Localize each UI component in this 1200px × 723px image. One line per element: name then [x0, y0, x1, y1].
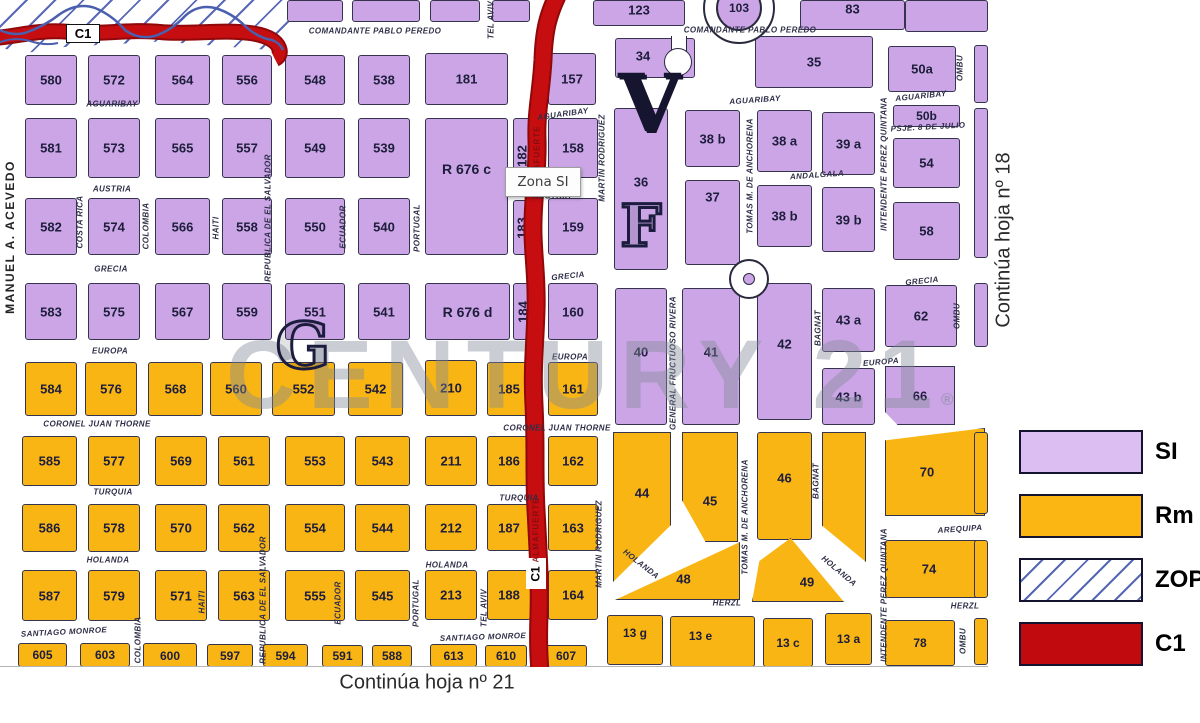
block-number: 575 — [103, 304, 125, 319]
street-label-ombu: OMBU — [953, 303, 962, 329]
block-159: 159 — [548, 198, 598, 255]
block-556: 556 — [222, 55, 272, 105]
block-163: 163 — [548, 504, 598, 551]
century21-watermark: CENTURY 21 — [226, 326, 944, 423]
block-number: 13 c — [776, 636, 799, 650]
logo-letter-f: F — [620, 197, 661, 255]
block-number: 600 — [160, 649, 180, 663]
block-number: 572 — [103, 73, 125, 88]
street-label-santiago-monroe: SANTIAGO MONROE — [21, 625, 108, 639]
block-561: 561 — [218, 436, 270, 486]
block-587: 587 — [22, 570, 77, 621]
block-568: 568 — [148, 362, 203, 416]
map-canvas: 103 C1 C1 V G F CENTURY 21 ® Zona SI 123… — [0, 0, 988, 667]
block-584: 584 — [25, 362, 77, 416]
block-553: 553 — [285, 436, 345, 486]
block-574: 574 — [88, 198, 140, 255]
street-label-republica-de-el-salvador: REPUBLICA DE EL SALVADOR — [264, 154, 273, 282]
block-number: 38 a — [772, 134, 797, 149]
block-605: 605 — [18, 643, 67, 667]
block-fragment — [974, 432, 988, 514]
block-number: 50a — [911, 62, 933, 77]
zona-si-tooltip: Zona SI — [505, 167, 581, 197]
block-number: 576 — [100, 382, 122, 397]
block-fragment — [974, 45, 988, 103]
street-label-santiago-monroe: SANTIAGO MONROE — [440, 631, 527, 643]
block-number: 586 — [39, 521, 61, 536]
block-number: 39 b — [835, 212, 861, 227]
block-number: 585 — [39, 454, 61, 469]
block-number: 549 — [304, 141, 326, 156]
block-number: 36 — [634, 175, 648, 190]
legend-swatch-zop — [1019, 558, 1143, 602]
block-fragment — [974, 108, 988, 258]
block-212: 212 — [425, 504, 477, 551]
block-213: 213 — [425, 570, 477, 620]
block-number: 540 — [373, 219, 395, 234]
legend-swatch-rm — [1019, 494, 1143, 538]
block-number: 213 — [440, 588, 462, 603]
block-538: 538 — [358, 55, 410, 105]
logo-letter-v: V — [618, 63, 680, 143]
block-564: 564 — [155, 55, 210, 105]
street-label-tel-aviv: TEL AVIV — [480, 589, 489, 627]
street-label-intendente-perez-quintana: INTENDENTE PEREZ QUINTANA — [880, 97, 889, 231]
continuation-label-bottom: Continúa hoja nº 21 — [339, 672, 514, 695]
block-576: 576 — [85, 362, 137, 416]
block-R676c: R 676 c — [425, 118, 508, 255]
block-number: 187 — [498, 520, 520, 535]
block-number: 556 — [236, 73, 258, 88]
block-13e: 13 e — [670, 616, 755, 667]
street-label-portugal: PORTUGAL — [412, 579, 421, 627]
block-591: 591 — [322, 645, 363, 667]
block-number: 58 — [919, 224, 933, 239]
block-number: 580 — [40, 73, 62, 88]
block-fragment — [974, 283, 988, 347]
street-label-comandante-pablo-peredo: COMANDANTE PABLO PEREDO — [684, 26, 817, 35]
block-157: 157 — [548, 53, 596, 105]
block-number: 559 — [236, 304, 258, 319]
street-label-martin-rodriguez: MARTIN RODRIGUEZ — [595, 500, 604, 588]
block-fragment — [822, 432, 866, 562]
block-575: 575 — [88, 283, 140, 340]
legend-swatch-c1 — [1019, 622, 1143, 666]
street-label-ombu: OMBU — [959, 628, 968, 654]
street-label-portugal: PORTUGAL — [413, 204, 422, 252]
block-567: 567 — [155, 283, 210, 340]
block-number: 569 — [170, 454, 192, 469]
block-number: 545 — [372, 588, 394, 603]
block-610: 610 — [485, 645, 527, 667]
zoning-map-page: 103 C1 C1 V G F CENTURY 21 ® Zona SI 123… — [0, 0, 1200, 723]
block-39a: 39 a — [822, 112, 875, 175]
block-181: 181 — [425, 53, 508, 105]
street-label-holanda: HOLANDA — [426, 561, 469, 570]
street-label-comandante-pablo-peredo: COMANDANTE PABLO PEREDO — [309, 27, 442, 36]
block-number: 13 e — [689, 629, 712, 643]
block-number: 159 — [562, 219, 584, 234]
block-number: 163 — [562, 520, 584, 535]
block-number: 54 — [919, 156, 933, 171]
block-565: 565 — [155, 118, 210, 178]
block-number: 565 — [172, 141, 194, 156]
block-number: 610 — [496, 649, 516, 663]
block-number: 70 — [920, 465, 934, 480]
registered-mark: ® — [941, 390, 954, 410]
block-582: 582 — [25, 198, 77, 255]
block-number: 566 — [172, 219, 194, 234]
logo-letter-g: G — [276, 315, 331, 379]
street-label-aguaribay: AGUARIBAY — [86, 100, 137, 109]
block-550: 550 — [285, 198, 345, 255]
street-label-herzl: HERZL — [713, 599, 742, 608]
block-number: 183 — [515, 217, 530, 239]
block-number: 49 — [800, 575, 814, 590]
block-539: 539 — [358, 118, 410, 178]
legend-label-rm: Rm — [1155, 502, 1194, 530]
block-number: 35 — [807, 55, 821, 70]
street-label-haiti: HAITI — [198, 591, 207, 614]
block-fragment — [352, 0, 420, 22]
block-number: 570 — [170, 521, 192, 536]
street-label-grecia: GRECIA — [551, 270, 585, 282]
street-label-republica-de-el-salvador: REPUBLICA DE EL SALVADOR — [259, 536, 268, 664]
block-number: 162 — [562, 454, 584, 469]
block-number: 613 — [443, 649, 463, 663]
block-581: 581 — [25, 118, 77, 178]
block-number: R 676 d — [443, 304, 493, 320]
block-613: 613 — [430, 644, 477, 667]
block-123: 123 — [593, 0, 685, 26]
block-number: 157 — [561, 72, 583, 87]
block-600: 600 — [143, 643, 197, 667]
c1-road-badge-road: C1 — [526, 558, 546, 589]
block-number: 548 — [304, 73, 326, 88]
block-number: 571 — [170, 588, 192, 603]
block-54: 54 — [893, 138, 960, 188]
block-13a: 13 a — [825, 613, 872, 665]
block-fragment — [905, 0, 988, 32]
block-597: 597 — [207, 644, 253, 667]
block-number: 564 — [172, 73, 194, 88]
block-162: 162 — [548, 436, 598, 486]
block-number: 181 — [456, 72, 478, 87]
block-164: 164 — [548, 570, 598, 620]
street-label-austria: AUSTRIA — [93, 185, 131, 194]
block-585: 585 — [22, 436, 77, 486]
street-label-holanda: HOLANDA — [87, 556, 130, 565]
street-label-grecia: GRECIA — [94, 265, 128, 274]
block-74: 74 — [885, 540, 985, 598]
block-583: 583 — [25, 283, 77, 340]
block-number: 44 — [635, 486, 649, 501]
block-594: 594 — [263, 644, 308, 667]
block-number: 561 — [233, 454, 255, 469]
legend-label-c1: C1 — [1155, 630, 1186, 658]
street-label-tel-aviv: TEL AVIV — [487, 1, 496, 39]
block-number: 541 — [373, 304, 395, 319]
block-number: 78 — [913, 636, 926, 650]
zop-hatch-area — [0, 0, 292, 56]
block-number: 573 — [103, 141, 125, 156]
block-number: 45 — [703, 494, 717, 509]
block-number: 13 a — [837, 632, 860, 646]
block-number: 48 — [676, 572, 690, 587]
street-label-tomas-m-de-anchorena: TOMAS M. DE ANCHORENA — [746, 118, 755, 234]
street-label-martin-rodriguez: MARTIN RODRIGUEZ — [598, 114, 607, 202]
block-37: 37 — [685, 180, 740, 265]
block-573: 573 — [88, 118, 140, 178]
block-566: 566 — [155, 198, 210, 255]
block-number: 603 — [95, 648, 115, 662]
block-fragment — [430, 0, 480, 22]
block-number: 568 — [165, 382, 187, 397]
block-183: 183 — [513, 200, 531, 255]
block-548: 548 — [285, 55, 345, 105]
street-label-colombia: COLOMBIA — [142, 203, 151, 250]
legend-row-c1: C1 — [1019, 622, 1186, 666]
roundabout-mid-inner — [743, 273, 755, 285]
street-label-bagnat: BAGNAT — [812, 463, 821, 499]
street-label-colombia: COLOMBIA — [134, 617, 143, 664]
street-label-costa-rica: COSTA RICA — [76, 196, 85, 249]
block-number: 577 — [103, 454, 125, 469]
block-number: R 676 c — [442, 161, 491, 177]
roundabout-number: 103 — [729, 1, 749, 15]
block-number: 574 — [103, 219, 125, 234]
legend-swatch-si — [1019, 430, 1143, 474]
road-inscription: ALMAFUERTE — [532, 497, 541, 562]
block-number: 582 — [40, 219, 62, 234]
block-number: 594 — [275, 649, 295, 663]
continuation-label-right: Continúa hoja nº 18 — [993, 152, 1016, 327]
block-number: 562 — [233, 521, 255, 536]
block-number: 83 — [845, 2, 859, 17]
block-603: 603 — [80, 643, 130, 667]
block-58: 58 — [893, 202, 960, 260]
block-number: 160 — [562, 304, 584, 319]
block-187: 187 — [487, 504, 531, 551]
tooltip-text: Zona SI — [517, 174, 568, 190]
block-543: 543 — [355, 436, 410, 486]
block-fragment — [974, 540, 988, 598]
block-number: 46 — [777, 471, 791, 486]
block-188: 188 — [487, 570, 531, 620]
block-549: 549 — [285, 118, 345, 178]
block-13c: 13 c — [763, 618, 813, 667]
legend-row-zop: ZOP — [1019, 558, 1200, 602]
legend-row-si: SI — [1019, 430, 1178, 474]
block-number: 38 b — [699, 131, 725, 146]
block-38a: 38 a — [757, 110, 812, 172]
block-569: 569 — [155, 436, 207, 486]
block-number: 186 — [498, 454, 520, 469]
street-label-intendente-perez-quintana: INTENDENTE PEREZ QUINTANA — [880, 528, 889, 662]
block-number: 554 — [304, 521, 326, 536]
block-572: 572 — [88, 55, 140, 105]
block-number: 583 — [40, 304, 62, 319]
block-number: 123 — [628, 3, 650, 18]
block-number: 550 — [304, 219, 326, 234]
block-number: 538 — [373, 73, 395, 88]
block-70: 70 — [885, 428, 985, 516]
street-label-europa: EUROPA — [92, 347, 128, 356]
block-number: 579 — [103, 588, 125, 603]
block-number: 38 b — [771, 209, 797, 224]
block-number: 581 — [40, 141, 62, 156]
block-50a: 50a — [888, 46, 956, 92]
block-544: 544 — [355, 504, 410, 552]
block-45: 45 — [682, 432, 738, 542]
block-number: 558 — [236, 219, 258, 234]
block-540: 540 — [358, 198, 410, 255]
block-number: 597 — [220, 649, 240, 663]
block-39b: 39 b — [822, 187, 875, 252]
street-label-tomas-m-de-anchorena: TOMAS M. DE ANCHORENA — [741, 459, 750, 575]
block-number: 164 — [562, 588, 584, 603]
block-586: 586 — [22, 504, 77, 552]
street-label-ombu: OMBU — [956, 55, 965, 81]
block-number: 539 — [373, 141, 395, 156]
block-number: 37 — [705, 189, 719, 204]
block-fragment — [287, 0, 343, 22]
block-number: 543 — [372, 454, 394, 469]
block-number: 557 — [236, 141, 258, 156]
block-607: 607 — [545, 645, 587, 667]
block-580: 580 — [25, 55, 77, 105]
block-number: 553 — [304, 454, 326, 469]
block-579: 579 — [88, 570, 140, 621]
street-label-manuel-a-acevedo: MANUEL A. ACEVEDO — [3, 160, 17, 314]
legend-row-rm: Rm — [1019, 494, 1194, 538]
block-577: 577 — [88, 436, 140, 486]
block-number: 584 — [40, 382, 62, 397]
block-number: 591 — [332, 649, 352, 663]
block-number: 211 — [441, 454, 462, 469]
street-label-haiti: HAITI — [212, 217, 221, 240]
block-number: 13 g — [623, 626, 647, 640]
block-545: 545 — [355, 570, 410, 621]
block-35: 35 — [755, 36, 873, 88]
street-label-coronel-juan-thorne: CORONEL JUAN THORNE — [43, 420, 150, 429]
block-number: 50b — [916, 109, 937, 123]
block-38b: 38 b — [757, 185, 812, 247]
street-label-aguaribay: AGUARIBAY — [729, 94, 781, 107]
block-number: 212 — [440, 520, 462, 535]
street-label-herzl: HERZL — [951, 602, 980, 611]
block-number: 578 — [103, 521, 125, 536]
block-number: 605 — [32, 648, 52, 662]
legend-label-si: SI — [1155, 438, 1178, 466]
c1-road-badge-top: C1 — [66, 24, 100, 43]
block-38b: 38 b — [685, 110, 740, 167]
c1-badge-text: C1 — [529, 566, 543, 581]
map-bottom-border — [0, 666, 988, 667]
block-number: 567 — [172, 304, 194, 319]
c1-badge-text: C1 — [75, 26, 92, 41]
street-label-turquia: TURQUIA — [93, 488, 132, 497]
block-number: 607 — [556, 649, 576, 663]
block-554: 554 — [285, 504, 345, 552]
block-number: 588 — [382, 649, 402, 663]
block-number: 39 a — [836, 136, 861, 151]
street-label-arequipa: AREQUIPA — [937, 523, 982, 535]
block-number: 587 — [39, 588, 61, 603]
block-588: 588 — [372, 645, 412, 667]
block-fragment — [492, 0, 530, 22]
block-number: 182 — [515, 145, 530, 167]
block-number: 544 — [372, 521, 394, 536]
street-label-ecuador: ECUADOR — [339, 205, 348, 248]
block-78: 78 — [885, 620, 955, 666]
block-number: 555 — [304, 588, 326, 603]
block-578: 578 — [88, 504, 140, 552]
block-number: 74 — [922, 562, 936, 577]
block-number: 188 — [498, 588, 520, 603]
block-number: 158 — [562, 141, 584, 156]
block-46: 46 — [757, 432, 812, 540]
block-211: 211 — [425, 436, 477, 486]
block-186: 186 — [487, 436, 531, 486]
block-fragment — [974, 618, 988, 665]
block-570: 570 — [155, 504, 207, 552]
street-label-ecuador: ECUADOR — [334, 581, 343, 624]
block-number: 563 — [233, 588, 255, 603]
block-13g: 13 g — [607, 615, 663, 665]
legend-label-zop: ZOP — [1155, 566, 1200, 594]
